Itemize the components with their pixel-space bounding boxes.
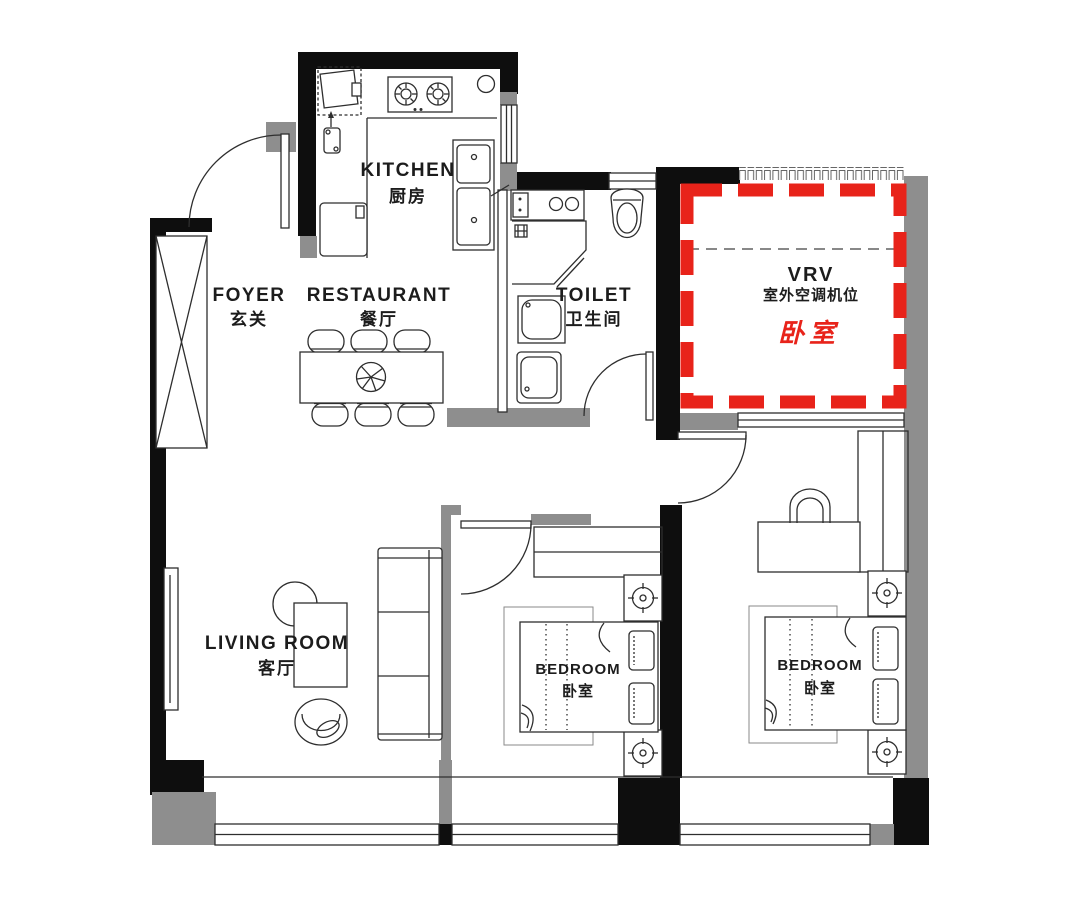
desk: [758, 522, 860, 572]
bedroom2-furniture: [749, 431, 908, 774]
kitchen-window: [501, 105, 517, 163]
bedroom2-label-cn: 卧室: [804, 681, 836, 696]
toilet-window: [609, 173, 656, 189]
bedroom2-label-en: BEDROOM: [777, 658, 862, 673]
bedroom1-label-cn: 卧室: [562, 684, 594, 699]
vrv-bedroom-highlight-cn: 卧室: [778, 320, 840, 346]
bedroom2-door: [678, 432, 746, 503]
partition-wall: [498, 190, 507, 412]
bedroom2-north-window: [738, 413, 904, 427]
dryer-machine: [517, 352, 561, 403]
kitchen-pot: [478, 76, 495, 93]
bedroom1-label-en: BEDROOM: [535, 662, 620, 677]
fridge: [320, 203, 367, 256]
wardrobe: [858, 431, 908, 572]
bed: [749, 606, 906, 743]
shower: [512, 221, 586, 287]
vrv-label: VRV: [788, 265, 835, 285]
balcony-window-band: [202, 777, 893, 845]
armchair: [295, 699, 347, 745]
toilet-door: [584, 352, 653, 420]
floorplan-canvas: KITCHEN 厨房 FOYER 玄关 RESTAURANT 餐厅 TOILET…: [0, 0, 1080, 903]
kitchen-prep-sink: [318, 67, 361, 115]
dining-chair: [394, 330, 430, 353]
toilet-label-en: TOILET: [556, 286, 632, 305]
table-plant: [357, 363, 386, 392]
living-room-label-en: LIVING ROOM: [205, 634, 349, 653]
sofa: [378, 548, 442, 740]
desk-chair: [790, 489, 830, 523]
vanity-sink: [511, 190, 584, 220]
vrv-subtitle-cn: 室外空调机位: [763, 288, 859, 303]
tv: [164, 568, 178, 710]
dining-chair: [398, 403, 434, 426]
stove: [388, 77, 452, 112]
restaurant-label-en: RESTAURANT: [307, 286, 451, 305]
toilet-bowl: [611, 189, 643, 238]
wardrobe: [534, 527, 662, 577]
dining-chair: [312, 403, 348, 426]
foyer-label-cn: 玄关: [230, 311, 268, 328]
living-room-label-cn: 客厅: [258, 660, 296, 677]
vrv-louver-grille: [739, 167, 904, 180]
bedroom1-door: [461, 521, 531, 594]
kitchen-label-en: KITCHEN: [361, 161, 456, 180]
kitchen-tap-symbol: [324, 111, 340, 153]
kitchen-label-cn: 厨房: [389, 188, 427, 205]
dining-set: [300, 330, 443, 426]
bedroom1-furniture: [504, 527, 662, 776]
dining-chair: [308, 330, 344, 353]
toilet-label-cn: 卫生间: [566, 311, 623, 328]
dining-chair: [351, 330, 387, 353]
restaurant-label-cn: 餐厅: [360, 311, 398, 328]
dining-chair: [355, 403, 391, 426]
floorplan-drawing: [0, 0, 1080, 903]
foyer-label-en: FOYER: [213, 286, 286, 305]
